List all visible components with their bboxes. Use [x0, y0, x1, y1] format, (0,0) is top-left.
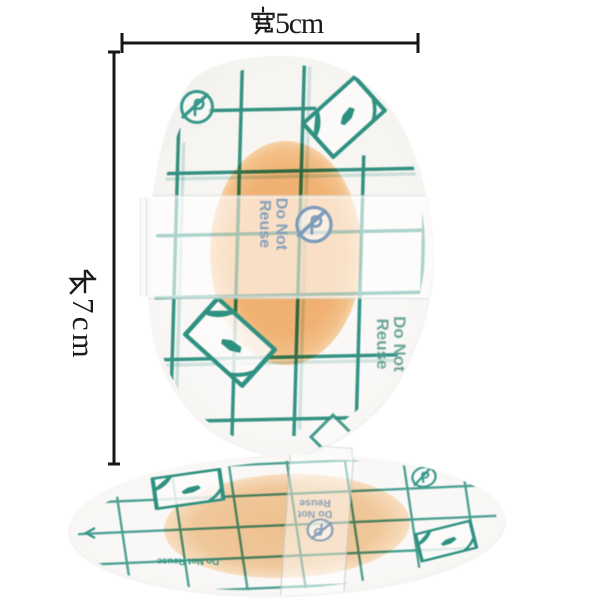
svg-text:Reuse: Reuse: [373, 318, 392, 369]
svg-text:Reuse: Reuse: [299, 497, 331, 509]
svg-text:Do Not Reuse: Do Not Reuse: [157, 556, 219, 567]
svg-text:Do Not: Do Not: [273, 198, 290, 251]
svg-text:Reuse: Reuse: [256, 200, 273, 248]
svg-text:5cm: 5cm: [275, 7, 324, 40]
svg-text:7cm: 7cm: [66, 298, 101, 361]
